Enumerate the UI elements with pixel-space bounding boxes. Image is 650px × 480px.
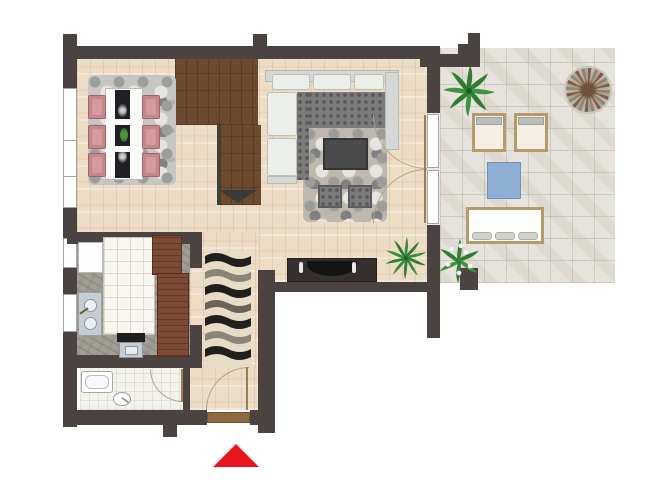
bench-cushion bbox=[518, 232, 538, 240]
toilet bbox=[113, 392, 133, 408]
wall-bottom-hall-right bbox=[250, 410, 258, 425]
terrace-flower-plant-icon bbox=[436, 238, 482, 284]
door-leaf bbox=[424, 169, 426, 223]
bathroom-door-leaf bbox=[181, 369, 183, 402]
kitchen-cabinet-upper bbox=[152, 235, 182, 275]
candlestick-icon bbox=[352, 262, 356, 273]
bench-cushion bbox=[495, 232, 515, 240]
terrace-palm-plant-icon bbox=[442, 64, 496, 118]
sofa-frame-left-end bbox=[267, 176, 297, 184]
table-crossbar bbox=[105, 146, 143, 152]
closet-direction-arrow-icon bbox=[219, 190, 257, 203]
dining-chair bbox=[88, 95, 106, 119]
sofa-left-cushion bbox=[267, 138, 297, 176]
pouf bbox=[318, 185, 342, 208]
mosaic-ornament-icon bbox=[564, 66, 612, 114]
pouf bbox=[348, 185, 372, 208]
wall-pillar-top-2a bbox=[458, 44, 480, 55]
closet-unit-wide bbox=[175, 58, 258, 125]
sofa-back-cushion bbox=[313, 74, 351, 90]
wall-living-bottom bbox=[258, 282, 440, 292]
coffee-table bbox=[323, 138, 368, 170]
wall-bath-door-jamb bbox=[183, 368, 190, 410]
entrance-marker bbox=[213, 444, 259, 467]
floor-plan-canvas bbox=[0, 0, 650, 480]
dining-chair bbox=[88, 153, 106, 177]
wall-pillar-top-1 bbox=[253, 34, 267, 48]
left-window-large bbox=[63, 88, 77, 208]
french-door-panel bbox=[427, 170, 439, 224]
wall-left-c bbox=[63, 268, 77, 294]
fridge bbox=[78, 242, 103, 273]
wall-pillar-bottom bbox=[163, 425, 177, 437]
wall-pillar-living-step bbox=[258, 270, 275, 292]
sofa-back-cushion bbox=[272, 74, 310, 90]
armchair-back-cushion bbox=[476, 117, 502, 125]
sofa-seat bbox=[300, 92, 385, 128]
sofa-back-cushion bbox=[354, 74, 384, 90]
armchair-back-cushion bbox=[518, 117, 544, 125]
dining-chair bbox=[142, 125, 160, 149]
kitchen-cabinet-lower bbox=[157, 273, 189, 357]
sink-unit bbox=[78, 292, 102, 336]
bathtub-basin bbox=[85, 375, 109, 389]
terrace-armchair bbox=[514, 113, 548, 152]
dining-chair bbox=[88, 125, 106, 149]
sofa-left-cushion bbox=[267, 92, 297, 136]
wall-right-living-top bbox=[427, 55, 440, 113]
sink-basin bbox=[84, 317, 97, 330]
dining-chair bbox=[142, 95, 160, 119]
wall-bottom-hall-left bbox=[67, 410, 207, 425]
living-room-plant-icon bbox=[384, 236, 428, 280]
wall-kitchen-right-upper bbox=[190, 232, 202, 268]
wave-rug-graphic bbox=[205, 252, 251, 368]
wall-corridor-right bbox=[258, 292, 275, 433]
table-crossbar bbox=[105, 119, 143, 125]
oven-door bbox=[125, 346, 138, 355]
oven bbox=[119, 342, 143, 358]
entrance-door-leaf bbox=[246, 367, 248, 410]
terrace-blue-table bbox=[487, 162, 521, 199]
french-door-panel bbox=[427, 114, 439, 168]
kitchen-counter bbox=[103, 237, 155, 335]
runner-medallion-icon bbox=[118, 104, 127, 117]
stove-unit bbox=[117, 333, 145, 342]
wall-left-a bbox=[63, 34, 77, 88]
sofa-seat-chaise bbox=[297, 92, 309, 180]
dining-chair bbox=[142, 153, 160, 177]
wall-pillar-top-2b bbox=[468, 33, 480, 45]
centerpiece-plant-icon bbox=[120, 128, 128, 142]
entrance-threshold bbox=[207, 412, 250, 423]
hallway-runner-rug bbox=[205, 252, 251, 368]
candlestick-icon bbox=[299, 262, 303, 273]
terrace-armchair bbox=[472, 113, 506, 152]
bathtub bbox=[81, 371, 113, 393]
left-window-small-2 bbox=[63, 294, 77, 332]
door-leaf bbox=[424, 115, 426, 169]
